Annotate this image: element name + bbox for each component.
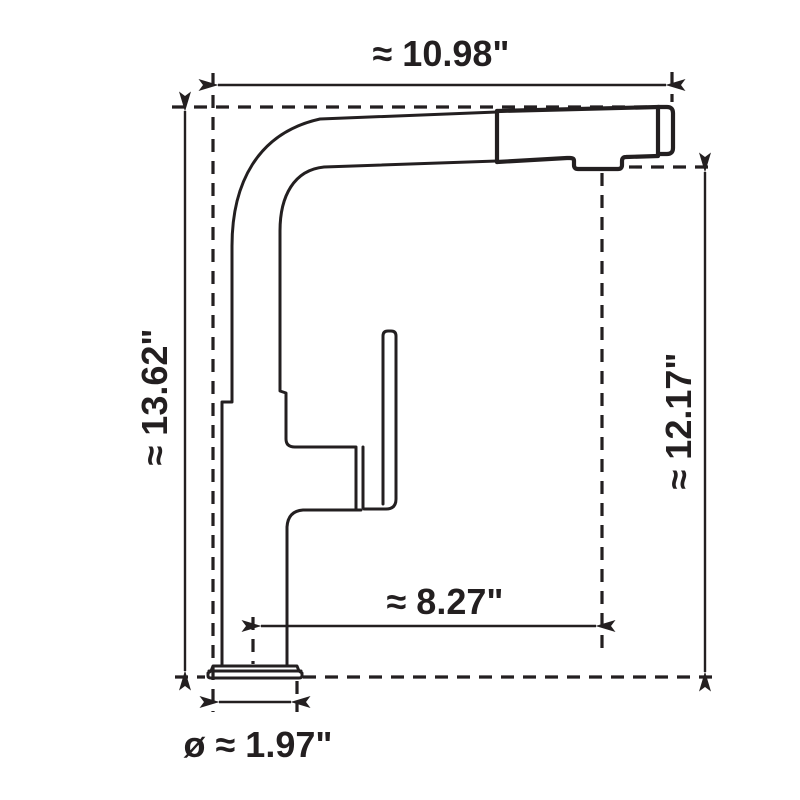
dimension-labels: ≈ 10.98" ≈ 13.62" ≈ 12.17" ≈ 8.27" ø ≈ 1… <box>134 33 699 765</box>
dimension-label-spout-reach: ≈ 8.27" <box>387 581 504 622</box>
dimension-label-spout-outlet-height: ≈ 12.17" <box>658 353 699 490</box>
dimension-label-overall-height: ≈ 13.62" <box>134 329 175 466</box>
faucet-handle-lever <box>364 331 396 509</box>
dimension-label-overall-width: ≈ 10.98" <box>373 33 510 74</box>
faucet-body-lower-right <box>287 510 361 666</box>
technical-drawing-svg: ≈ 10.98" ≈ 13.62" ≈ 12.17" ≈ 8.27" ø ≈ 1… <box>0 0 800 800</box>
sprayer-head-top <box>497 107 659 111</box>
dimension-label-base-diameter: ø ≈ 1.97" <box>184 724 333 765</box>
sprayer-head-end-cap <box>658 107 673 154</box>
faucet-dimension-diagram: ≈ 10.98" ≈ 13.62" ≈ 12.17" ≈ 8.27" ø ≈ 1… <box>0 0 800 800</box>
faucet-spout-inner-edge <box>280 161 497 509</box>
